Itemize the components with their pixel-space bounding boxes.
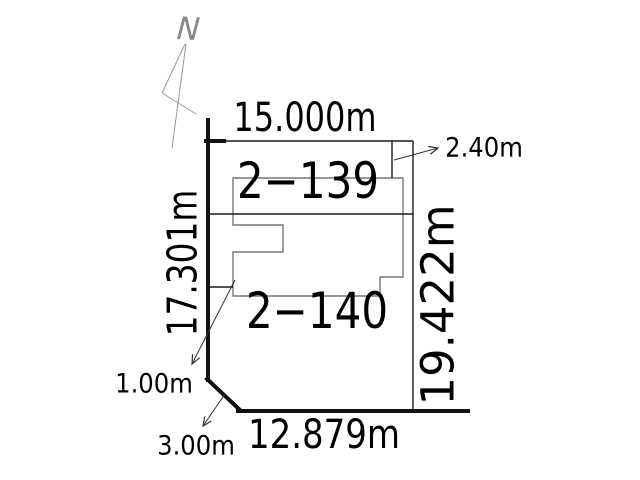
- corner-chamfer: [207, 379, 240, 410]
- parcel-2-139-label: 2−139: [237, 156, 379, 206]
- dim-right-label: 19.422m: [416, 204, 461, 405]
- leader-chamfer: [203, 394, 225, 426]
- dim-top-label: 15.000m: [233, 98, 376, 138]
- plat-diagram: N 15.000m 2−139 2−140 17.301m 19.422m 2.…: [0, 0, 640, 480]
- dim-strip-label: 2.40m: [445, 135, 523, 162]
- leader-strip: [394, 148, 438, 160]
- parcel-2-140-label: 2−140: [246, 286, 388, 336]
- dim-left-label: 17.301m: [163, 190, 204, 337]
- survey-drawing: [0, 0, 640, 480]
- dim-bottom-label: 12.879m: [248, 415, 400, 455]
- dim-chamfer-label: 3.00m: [157, 433, 235, 460]
- dim-offset-label: 1.00m: [115, 371, 193, 398]
- north-arrow-icon: [162, 44, 196, 148]
